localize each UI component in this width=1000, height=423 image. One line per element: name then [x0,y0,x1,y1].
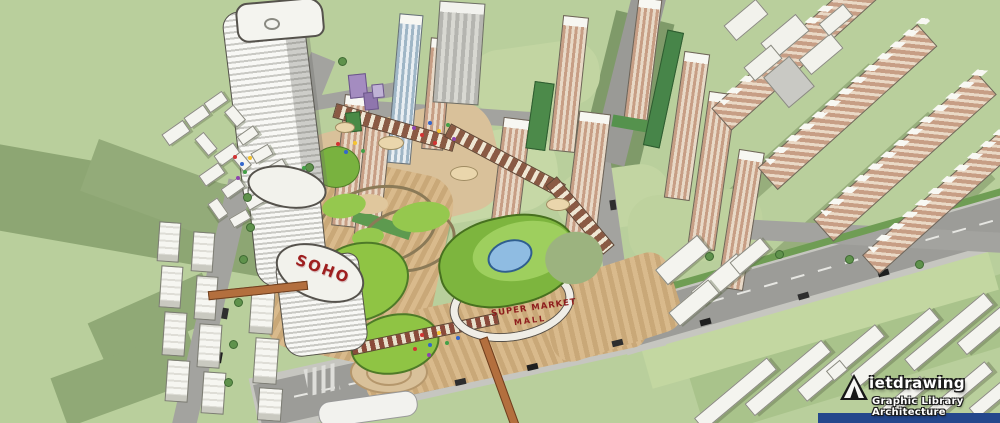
slab-tower [165,359,191,403]
person-dot [420,133,424,137]
tower-block-gray [432,1,485,106]
person-dot [420,333,424,337]
person-dot [240,162,244,166]
architectural-rendering: SUPER MARKET MALL SOHO ietdrawing Graphi… [0,0,1000,423]
person-dot [446,123,450,127]
tree [224,378,233,387]
person-dot [233,155,237,159]
slab-tower [159,265,184,308]
tree [243,193,252,202]
person-dot [428,121,432,125]
person-dot [361,149,365,153]
person-dot [437,331,441,335]
sand-oval [378,136,404,150]
person-dot [413,347,417,351]
tree [705,252,714,261]
house [161,120,190,146]
slab-tower [257,387,283,422]
person-dot [336,142,340,146]
tree [229,340,238,349]
slab-tower [196,323,222,368]
slab-tower [248,289,275,335]
tree [305,163,314,172]
person-dot [437,129,441,133]
slab-tower [157,221,182,262]
person-dot [302,166,306,170]
person-dot [427,353,431,357]
person-dot [433,141,437,145]
person-dot [248,156,252,160]
slab-tower [201,371,227,415]
podium-purple [371,83,384,98]
tree [775,250,784,259]
person-dot [428,343,432,347]
sand-oval [335,122,355,133]
car [221,308,229,320]
watermark-bar [818,413,1000,423]
tree [234,298,243,307]
car [609,200,616,211]
tree [845,255,854,264]
sand-oval [450,166,478,181]
white-box [723,0,768,41]
main-tower-roof [234,0,325,44]
tree [338,57,347,66]
tree [239,255,248,264]
sand-oval [546,198,570,211]
slab-tower [252,337,279,385]
person-dot [445,341,449,345]
tree [246,223,255,232]
slab-tower [191,231,216,272]
person-dot [243,170,247,174]
person-dot [236,176,240,180]
main-tower-roof-ring [264,18,280,30]
person-dot [452,137,456,141]
person-dot [353,141,357,145]
tree [915,260,924,269]
person-dot [456,336,460,340]
house [194,132,217,157]
slab-tower [161,311,187,356]
person-dot [344,150,348,154]
person-dot [412,126,416,130]
